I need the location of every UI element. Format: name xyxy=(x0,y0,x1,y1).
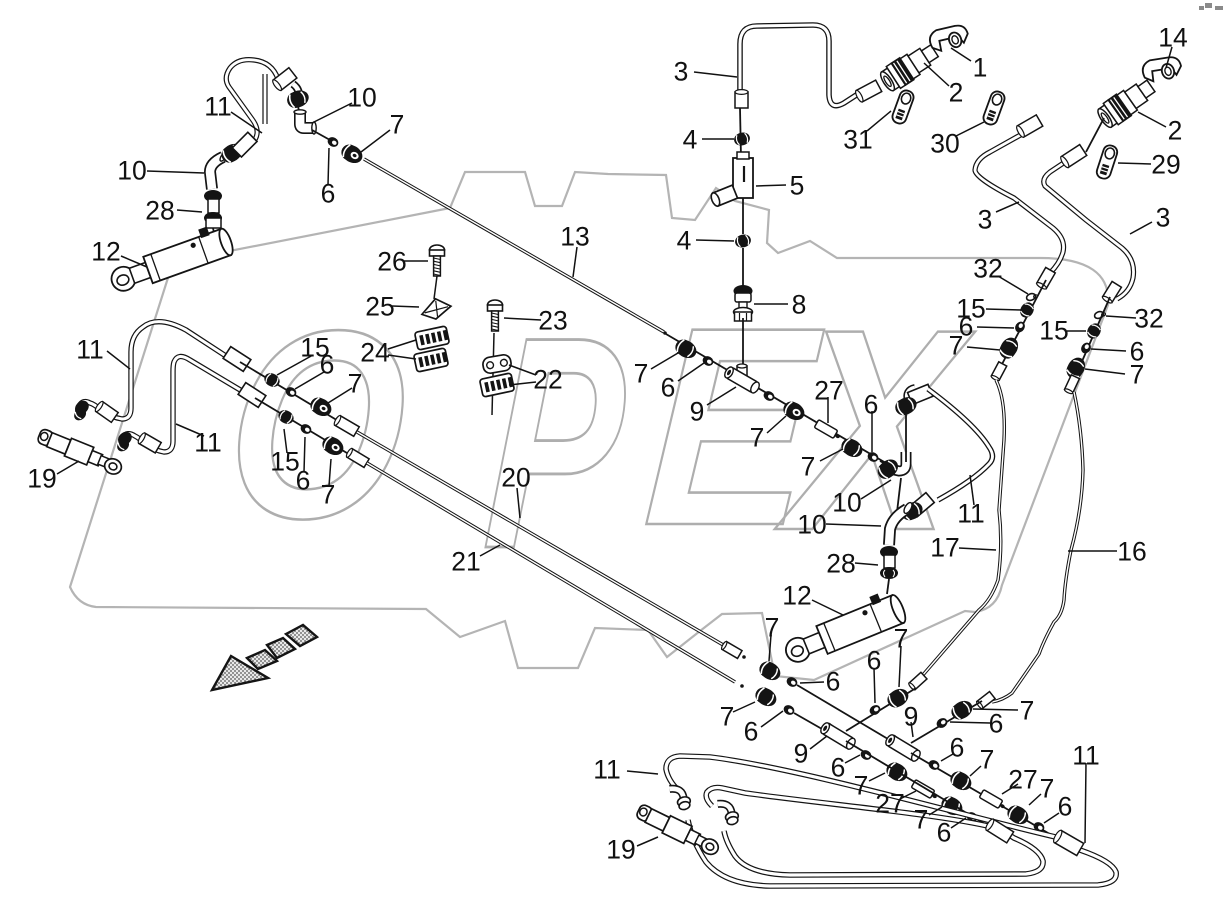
svg-text:27: 27 xyxy=(875,789,904,819)
svg-text:6: 6 xyxy=(321,179,336,209)
svg-text:2: 2 xyxy=(949,78,964,108)
svg-text:1: 1 xyxy=(973,53,988,83)
svg-text:12: 12 xyxy=(91,237,120,267)
svg-text:15: 15 xyxy=(1039,316,1068,346)
svg-text:7: 7 xyxy=(1040,774,1055,804)
svg-text:10: 10 xyxy=(117,156,146,186)
svg-text:25: 25 xyxy=(365,292,394,322)
svg-text:22: 22 xyxy=(533,365,562,395)
svg-text:10: 10 xyxy=(832,488,861,518)
svg-text:29: 29 xyxy=(1151,150,1180,180)
svg-text:11: 11 xyxy=(593,755,621,785)
svg-text:3: 3 xyxy=(1156,203,1171,233)
svg-text:10: 10 xyxy=(347,83,376,113)
svg-text:4: 4 xyxy=(677,226,692,256)
svg-text:13: 13 xyxy=(560,222,589,252)
svg-text:7: 7 xyxy=(1130,360,1145,390)
svg-text:6: 6 xyxy=(864,390,879,420)
svg-text:7: 7 xyxy=(348,369,363,399)
svg-text:16: 16 xyxy=(1117,537,1146,567)
svg-text:26: 26 xyxy=(377,247,406,277)
svg-text:6: 6 xyxy=(826,667,841,697)
svg-text:11: 11 xyxy=(194,428,222,458)
svg-text:32: 32 xyxy=(1134,304,1163,334)
svg-text:6: 6 xyxy=(950,733,965,763)
svg-text:7: 7 xyxy=(1020,696,1035,726)
svg-text:7: 7 xyxy=(980,745,995,775)
svg-text:30: 30 xyxy=(930,129,959,159)
svg-text:11: 11 xyxy=(1072,741,1100,771)
svg-text:9: 9 xyxy=(904,702,919,732)
svg-text:11: 11 xyxy=(204,92,232,122)
svg-text:10: 10 xyxy=(797,510,826,540)
svg-text:7: 7 xyxy=(321,480,336,510)
svg-text:5: 5 xyxy=(790,171,805,201)
svg-text:17: 17 xyxy=(930,533,959,563)
svg-text:23: 23 xyxy=(538,306,567,336)
svg-text:31: 31 xyxy=(843,125,872,155)
svg-text:7: 7 xyxy=(750,423,765,453)
svg-text:6: 6 xyxy=(744,717,759,747)
svg-text:27: 27 xyxy=(1008,765,1037,795)
svg-text:7: 7 xyxy=(720,702,735,732)
svg-text:7: 7 xyxy=(390,110,405,140)
svg-text:7: 7 xyxy=(634,359,649,389)
svg-text:7: 7 xyxy=(894,624,909,654)
svg-text:6: 6 xyxy=(296,466,311,496)
svg-text:14: 14 xyxy=(1158,23,1187,53)
svg-text:2: 2 xyxy=(1168,116,1183,146)
svg-text:6: 6 xyxy=(831,753,846,783)
svg-text:4: 4 xyxy=(683,125,698,155)
svg-text:7: 7 xyxy=(949,331,964,361)
svg-text:6: 6 xyxy=(867,646,882,676)
svg-text:12: 12 xyxy=(782,581,811,611)
svg-text:7: 7 xyxy=(765,613,780,643)
svg-text:6: 6 xyxy=(320,350,335,380)
svg-text:24: 24 xyxy=(360,338,389,368)
svg-text:19: 19 xyxy=(606,835,635,865)
svg-text:32: 32 xyxy=(973,254,1002,284)
svg-text:7: 7 xyxy=(801,452,816,482)
svg-text:27: 27 xyxy=(814,376,843,406)
svg-text:28: 28 xyxy=(145,196,174,226)
svg-text:21: 21 xyxy=(451,547,480,577)
svg-text:6: 6 xyxy=(661,373,676,403)
svg-text:7: 7 xyxy=(854,771,869,801)
svg-text:11: 11 xyxy=(76,335,104,365)
svg-text:8: 8 xyxy=(792,290,807,320)
svg-text:3: 3 xyxy=(674,57,689,87)
svg-text:11: 11 xyxy=(957,499,985,529)
svg-text:6: 6 xyxy=(989,709,1004,739)
svg-text:6: 6 xyxy=(1058,792,1073,822)
svg-text:3: 3 xyxy=(978,205,993,235)
svg-text:28: 28 xyxy=(826,549,855,579)
svg-text:20: 20 xyxy=(501,463,530,493)
svg-text:7: 7 xyxy=(914,805,929,835)
svg-text:9: 9 xyxy=(690,397,705,427)
svg-text:19: 19 xyxy=(27,464,56,494)
svg-text:9: 9 xyxy=(794,739,809,769)
svg-text:6: 6 xyxy=(937,818,952,848)
